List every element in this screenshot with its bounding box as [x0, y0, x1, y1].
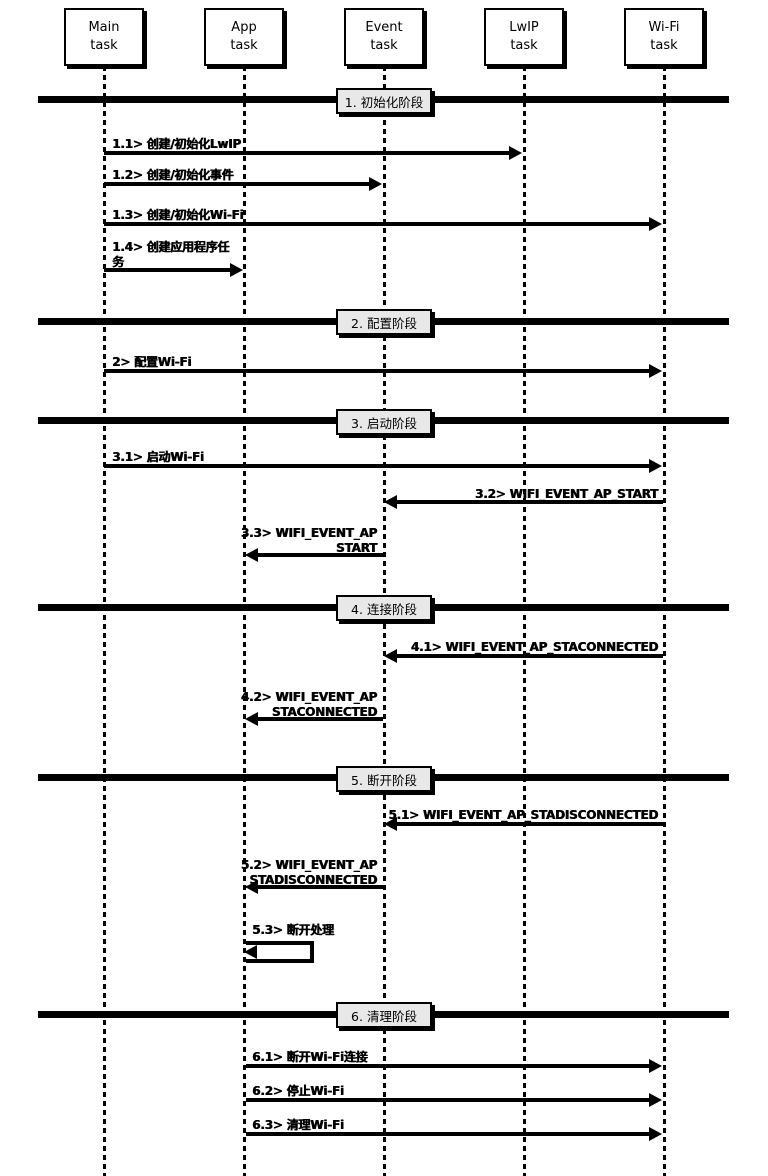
- phase-label-6: 6. 清理阶段: [336, 1002, 432, 1028]
- phase-label-3: 3. 启动阶段: [336, 409, 432, 435]
- arrowhead-icon: [649, 1093, 662, 1107]
- message-arrow-5-3-self-loop: [246, 941, 314, 963]
- message-label-1-1: 1.1> 创建/初始化LwIP: [112, 137, 241, 152]
- sequence-diagram: Main task App task Event task LwIP task …: [0, 0, 768, 1176]
- arrowhead-icon: [649, 1059, 662, 1073]
- message-label-3-3: 3.3> WIFI_EVENT_AP _START: [241, 526, 377, 556]
- phase-label-2: 2. 配置阶段: [336, 309, 432, 335]
- arrowhead-icon: [509, 146, 522, 160]
- phase-label-5: 5. 断开阶段: [336, 766, 432, 792]
- lifeline-main-task: [103, 66, 106, 1176]
- message-label-6-1: 6.1> 断开Wi-Fi连接: [252, 1050, 367, 1065]
- actor-box-main-task: Main task: [64, 8, 144, 66]
- message-label-2: 2> 配置Wi-Fi: [112, 355, 191, 370]
- arrowhead-icon: [649, 459, 662, 473]
- phase-label-4: 4. 连接阶段: [336, 595, 432, 621]
- phase-label-1: 1. 初始化阶段: [336, 88, 432, 114]
- lifeline-lwip-task: [523, 66, 526, 1176]
- arrowhead-icon: [369, 177, 382, 191]
- arrowhead-icon: [384, 495, 397, 509]
- arrowhead-icon: [384, 649, 397, 663]
- arrowhead-icon: [244, 945, 257, 959]
- message-label-1-4: 1.4> 创建应用程序任 务: [112, 240, 244, 270]
- lifeline-wifi-task: [663, 66, 666, 1176]
- message-label-3-2: 3.2> WIFI_EVENT_AP_START: [475, 487, 658, 502]
- message-label-4-1: 4.1> WIFI_EVENT_AP_STACONNECTED: [411, 640, 658, 655]
- arrowhead-icon: [649, 217, 662, 231]
- message-label-4-2: 4.2> WIFI_EVENT_AP _STACONNECTED: [241, 690, 377, 720]
- message-label-1-3: 1.3> 创建/初始化Wi-Fi: [112, 208, 243, 223]
- message-label-5-3: 5.3> 断开处理: [252, 923, 334, 938]
- message-label-3-1: 3.1> 启动Wi-Fi: [112, 450, 204, 465]
- actor-box-lwip-task: LwIP task: [484, 8, 564, 66]
- actor-box-app-task: App task: [204, 8, 284, 66]
- message-label-6-2: 6.2> 停止Wi-Fi: [252, 1084, 344, 1099]
- message-label-5-2: 5.2> WIFI_EVENT_AP _STADISCONNECTED: [241, 858, 377, 888]
- actor-box-wifi-task: Wi-Fi task: [624, 8, 704, 66]
- message-label-1-2: 1.2> 创建/初始化事件: [112, 168, 233, 183]
- lifeline-app-task: [243, 66, 246, 1176]
- message-label-5-1: 5.1> WIFI_EVENT_AP_STADISCONNECTED: [388, 808, 658, 823]
- actor-box-event-task: Event task: [344, 8, 424, 66]
- message-label-6-3: 6.3> 清理Wi-Fi: [252, 1118, 344, 1133]
- arrowhead-icon: [649, 1127, 662, 1141]
- arrowhead-icon: [649, 364, 662, 378]
